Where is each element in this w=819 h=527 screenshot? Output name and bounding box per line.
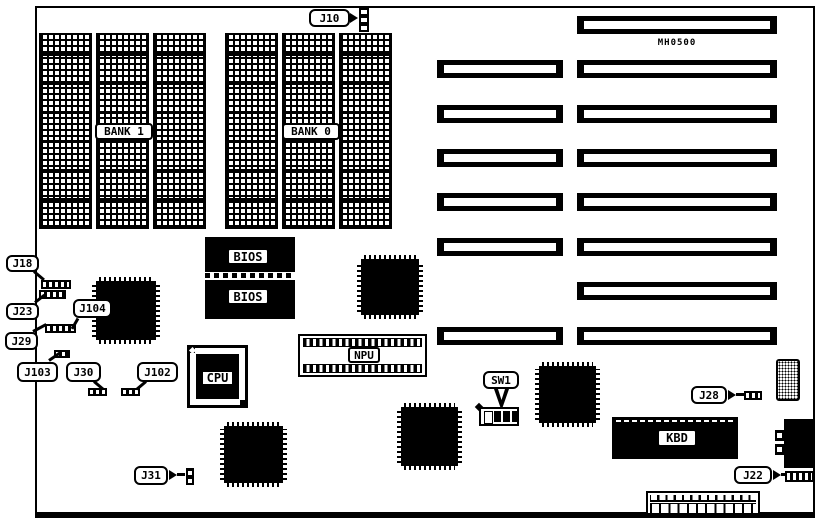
- bios-top-label: BIOS: [228, 249, 268, 264]
- bank1-label: BANK 1: [95, 123, 153, 140]
- expansion-slot: [577, 16, 777, 34]
- expansion-slot: [577, 238, 777, 256]
- crystal-oscillator: [776, 359, 800, 401]
- keyboard-din-connector: [784, 419, 815, 468]
- callout-j23: J23: [6, 303, 39, 320]
- expansion-slot: [577, 60, 777, 78]
- expansion-slot: [577, 105, 777, 123]
- bios-divider: [205, 272, 295, 280]
- callout-j18-text: J18: [13, 257, 33, 270]
- expansion-slot-ext: [437, 193, 563, 211]
- power-connector: [646, 491, 760, 515]
- callout-j23-text: J23: [13, 305, 33, 318]
- ic-chip: [397, 403, 462, 470]
- memory-chip-strip: [39, 33, 92, 229]
- callout-j28-text: J28: [699, 389, 719, 402]
- memory-chip-strip: [153, 33, 206, 229]
- dip-switch-sw1: [479, 407, 519, 426]
- callout-j22-lead: [781, 473, 786, 476]
- bios-bottom-label-text: BIOS: [234, 290, 263, 304]
- ic-chip: [535, 362, 600, 427]
- callout-j10: J10: [309, 9, 350, 27]
- dip-switch-position-2: [494, 411, 501, 422]
- callout-j10-text: J10: [320, 12, 340, 25]
- npu-pin-row: [303, 338, 422, 347]
- callout-j22: J22: [734, 466, 772, 484]
- bank1-label-text: BANK 1: [104, 125, 144, 138]
- jumper-j18: [41, 280, 71, 289]
- kbd-label-text: KBD: [666, 431, 688, 445]
- expansion-slot-ext: [437, 105, 563, 123]
- dip-switch-position-1: [484, 411, 493, 424]
- callout-j28-lead: [736, 393, 744, 396]
- expansion-slot: [577, 327, 777, 345]
- power-connector-pins-top: [650, 495, 756, 502]
- callout-j102: J102: [137, 362, 178, 382]
- npu-label: NPU: [348, 347, 380, 363]
- bank0-label-text: BANK 0: [291, 125, 331, 138]
- jumper-j31: [186, 468, 194, 485]
- callout-j10-pointer-icon: [350, 13, 358, 23]
- expansion-slot-ext: [437, 327, 563, 345]
- callout-j31: J31: [134, 466, 168, 485]
- callout-j29: J29: [5, 332, 38, 350]
- dip-switch-position-4: [512, 411, 518, 422]
- cpu-label: CPU: [201, 370, 234, 386]
- callout-j31-pointer-icon: [169, 470, 177, 480]
- board-model-label: MH0500: [577, 38, 777, 48]
- bios-bottom-label: BIOS: [228, 289, 268, 304]
- callout-j22-pointer-icon: [773, 470, 781, 480]
- power-connector-pins-bottom: [650, 503, 756, 513]
- callout-sw1-text: SW1: [491, 374, 511, 387]
- callout-j103: J103: [17, 362, 58, 382]
- npu-label-text: NPU: [354, 349, 374, 362]
- kbd-dashed-line: [616, 420, 734, 422]
- bios-top-label-text: BIOS: [234, 250, 263, 264]
- jumper-j22: [785, 471, 814, 482]
- callout-j28-pointer-icon: [728, 390, 736, 400]
- expansion-slot-ext: [437, 60, 563, 78]
- motherboard-diagram: BANK 1 BANK 0 J10 MH0500 BIOS BIOS CPU: [0, 0, 819, 527]
- callout-j28: J28: [691, 386, 727, 404]
- cpu-label-text: CPU: [207, 371, 229, 385]
- ic-chip: [220, 422, 287, 487]
- callout-j103-text: J103: [24, 366, 51, 379]
- ic-chip: [357, 255, 423, 319]
- bank0-label: BANK 0: [282, 123, 340, 140]
- callout-j31-text: J31: [141, 469, 161, 482]
- memory-chip-strip: [225, 33, 278, 229]
- jumper-j10: [359, 8, 369, 32]
- cpu-corner: [240, 400, 248, 408]
- callout-j102-text: J102: [144, 366, 171, 379]
- jumper-j30: [88, 388, 107, 396]
- din-pin-tab: [775, 430, 785, 441]
- kbd-label: KBD: [658, 430, 696, 446]
- npu-pin-row: [303, 364, 422, 373]
- callout-sw1: SW1: [483, 371, 519, 389]
- callout-j22-text: J22: [743, 469, 763, 482]
- dip-switch-position-3: [503, 411, 510, 422]
- jumper-j28: [744, 391, 762, 400]
- expansion-slot: [577, 193, 777, 211]
- callout-j104: J104: [73, 299, 112, 318]
- memory-chip-strip: [339, 33, 392, 229]
- din-pin-tab: [775, 444, 785, 455]
- expansion-slot: [577, 149, 777, 167]
- expansion-slot-ext: [437, 238, 563, 256]
- callout-j30-text: J30: [74, 366, 94, 379]
- callout-j31-lead: [177, 473, 185, 476]
- callout-j104-text: J104: [79, 302, 106, 315]
- callout-j30: J30: [66, 362, 101, 382]
- callout-j18: J18: [6, 255, 39, 272]
- expansion-slot: [577, 282, 777, 300]
- expansion-slot-ext: [437, 149, 563, 167]
- callout-j29-text: J29: [12, 335, 32, 348]
